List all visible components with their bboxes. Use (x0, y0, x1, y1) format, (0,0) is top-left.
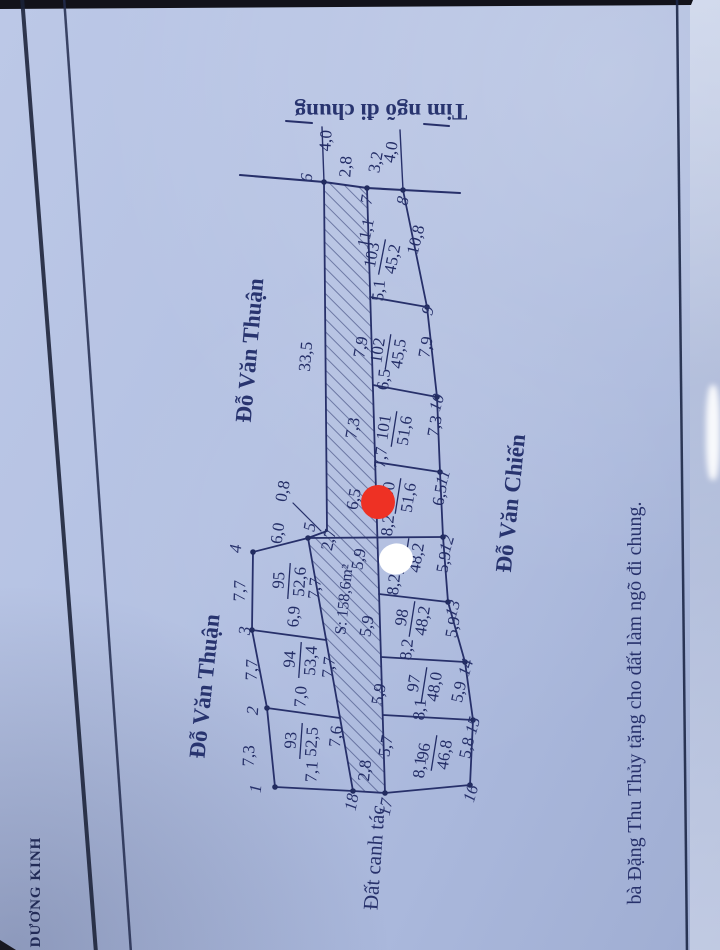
dim-strip-length: 33,5 (295, 341, 317, 372)
plot-101-number: 101 (372, 413, 395, 441)
plot-97-label: 97 48,0 (401, 664, 446, 706)
dim-14-15: 5,9 (447, 679, 470, 704)
plot-97-area: 48,0 (423, 670, 446, 702)
dim-8-9: 10,8 (403, 223, 429, 256)
scan-corner-shadow (0, 940, 16, 950)
dim-101-west: 7,3 (341, 416, 363, 440)
dim-101-102: 6,5 (373, 368, 394, 391)
dim-97-98: 8,2 (396, 638, 417, 661)
street-thuan-lower: Đỗ Văn Thuận (185, 613, 225, 760)
dim-15-16: 5,8 (455, 735, 478, 760)
dim-100-101: 7,7 (370, 445, 391, 469)
survey-point-16: 16 (459, 782, 482, 804)
dim-98-99: 8,2 (383, 573, 404, 596)
lane-width-tick-right (400, 130, 403, 190)
dim-7-8: 3,2 (364, 150, 386, 174)
divider-97-98 (381, 657, 465, 662)
dim-4-5: 6,0 (267, 521, 289, 545)
dim-94-93: 7,0 (290, 685, 310, 708)
dim-97-west: 5,9 (367, 682, 389, 706)
plot-93-number: 93 (280, 731, 300, 749)
survey-point-4: 4 (226, 543, 246, 553)
left-margin-rule-outer (22, 0, 96, 950)
left-margin-rule-inner (64, 0, 131, 950)
plot-102-number: 102 (366, 336, 389, 364)
plot-96-number: 96 (413, 741, 434, 761)
plot-94-area: 53,4 (300, 645, 321, 677)
lane-centerline-label: Tim ngõ đi chung (294, 99, 467, 124)
survey-point-8: 8 (392, 194, 412, 207)
plot-96-area: 46,8 (433, 738, 456, 770)
plot-94-number: 94 (279, 650, 299, 669)
dim-2-3: 7,7 (242, 658, 262, 680)
street-thuan-upper: Đỗ Văn Thuận (231, 277, 269, 424)
dim-9-10: 7,9 (414, 335, 436, 359)
plot-93-area: 52,5 (301, 726, 322, 757)
farmland-label: Đất canh tác (358, 804, 389, 910)
district-label: DƯƠNG KINH (28, 837, 44, 948)
plot-98-label: 98 48,2 (389, 598, 434, 640)
dim-10-11: 7,3 (423, 414, 445, 438)
plot-94-label: 94 53,4 (279, 641, 321, 680)
dim-11-12: 6,5 (428, 483, 450, 507)
plot-95-label: 95 52,6 (268, 562, 310, 601)
dim-strip-south: 2,8 (354, 759, 375, 782)
dim-93-south: 7,1 (301, 760, 321, 783)
scan-top-edge (0, 0, 693, 9)
survey-drawing: 1 2 3 4 5 6 7 8 9 10 11 12 13 14 15 16 1… (0, 0, 720, 950)
survey-point-15: 15 (461, 715, 484, 737)
plot-102-area: 45,5 (387, 337, 410, 369)
survey-point-6: 6 (297, 172, 317, 182)
dim-93-east: 7,6 (325, 725, 346, 748)
dim-lane-half-width-a: 4,0 (315, 129, 335, 152)
plot-98-number: 98 (391, 607, 412, 627)
donation-note: bà Đặng Thu Thủy tặng cho đất làm ngõ đi… (624, 501, 646, 904)
plot-98-area: 48,2 (411, 604, 434, 636)
plot-101-area: 51,6 (393, 414, 416, 446)
dim-95-94: 6,9 (283, 605, 303, 628)
plot-93-label: 93 52,5 (280, 722, 322, 761)
survey-point-1: 1 (246, 784, 266, 794)
dim-jog: 0,8 (271, 479, 293, 503)
plot-97-number: 97 (403, 673, 425, 693)
street-chien: Đỗ Văn Chiến (491, 433, 530, 574)
scanned-cadastral-sketch: 1 2 3 4 5 6 7 8 9 10 11 12 13 14 15 16 1… (0, 0, 720, 950)
plot-95-area: 52,6 (289, 566, 310, 597)
dim-3-4: 7,7 (230, 579, 250, 601)
dim-98-west: 5,9 (355, 614, 377, 638)
survey-point-5: 5 (299, 521, 319, 533)
survey-point-3: 3 (235, 626, 255, 637)
survey-point-2: 2 (243, 705, 263, 715)
divider-94-95 (252, 630, 326, 640)
divider-93-94 (267, 708, 340, 718)
survey-point-10: 10 (425, 391, 448, 413)
plot-100-area: 51,6 (397, 481, 420, 513)
plot-101-label: 101 51,6 (371, 408, 416, 450)
dim-96-west: 5,7 (374, 733, 396, 758)
plot-95-number: 95 (268, 571, 288, 589)
dim-1-2: 7,3 (239, 745, 259, 767)
dim-102-103: 5,1 (368, 279, 389, 302)
dim-13-14: 5,9 (441, 615, 463, 639)
dim-12-13: 5,9 (432, 550, 454, 574)
survey-point-14: 14 (454, 656, 477, 678)
dim-6-7: 2,8 (335, 155, 355, 178)
red-marker (361, 485, 395, 519)
right-margin-rule (677, 0, 687, 950)
dim-94-east: 7,7 (318, 655, 339, 679)
survey-point-18: 18 (341, 792, 363, 813)
